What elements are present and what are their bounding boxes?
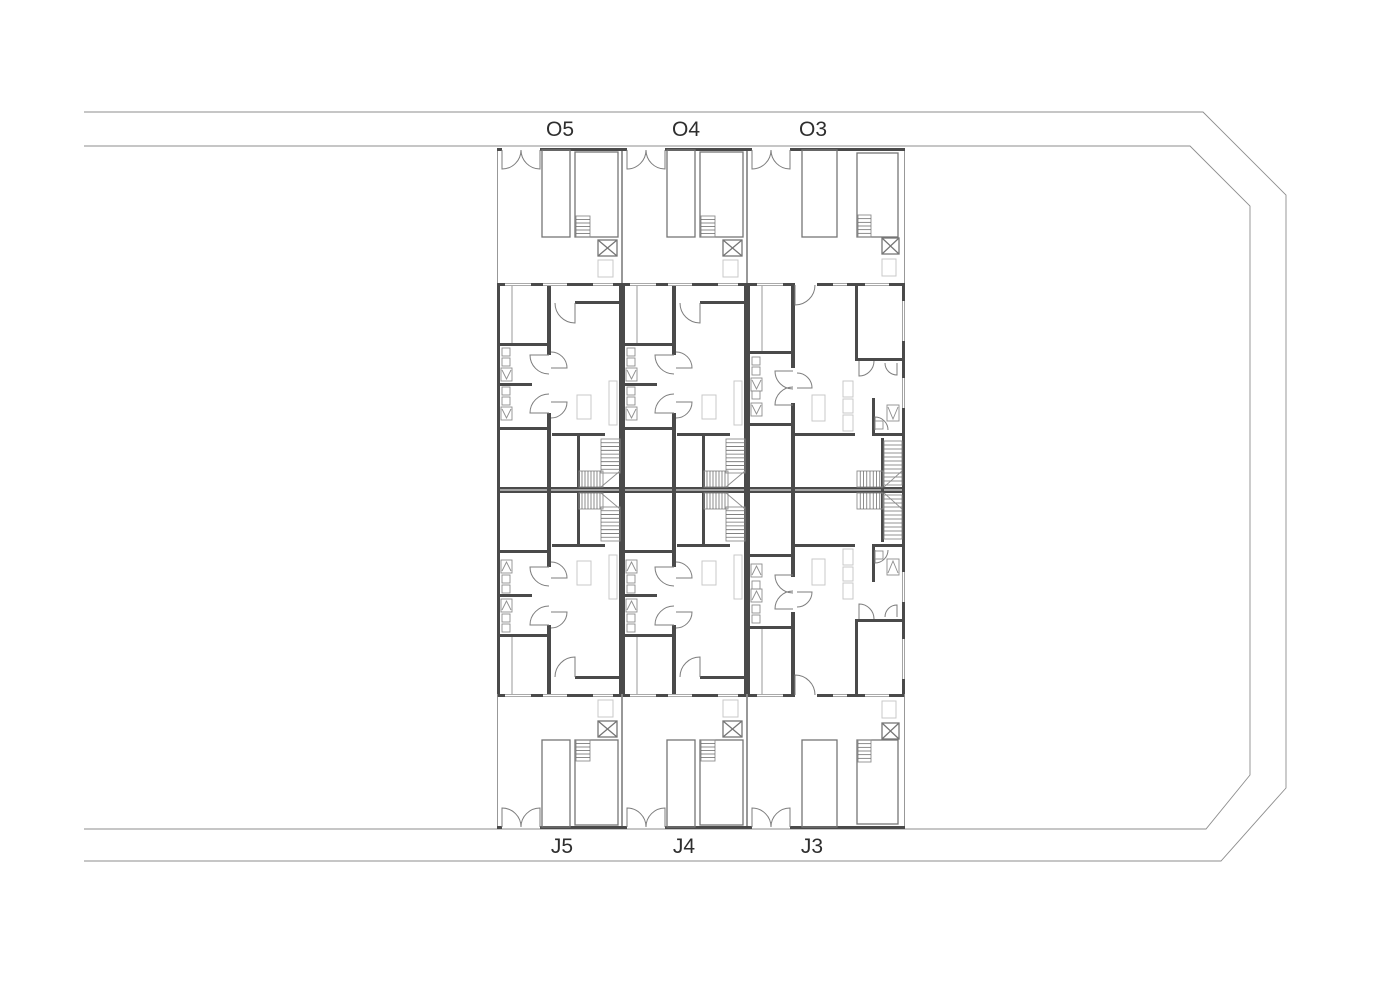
unit-label-J4: J4 bbox=[673, 835, 696, 858]
unit-label-J5: J5 bbox=[551, 835, 573, 858]
unit-O4-courtyard bbox=[622, 148, 747, 283]
unit-J5-courtyard bbox=[497, 694, 622, 829]
unit-O5-dwelling bbox=[497, 283, 622, 490]
unit-O3-dwelling bbox=[747, 283, 905, 490]
floor-plan-drawing: O5J5O4J4O3J3 bbox=[0, 0, 1400, 989]
site-boundary bbox=[84, 112, 1286, 861]
unit-J3-courtyard bbox=[747, 694, 905, 829]
unit-J3-dwelling bbox=[747, 490, 905, 697]
unit-label-O4: O4 bbox=[672, 118, 700, 141]
unit-O4-dwelling bbox=[622, 283, 747, 490]
unit-O5-courtyard bbox=[497, 148, 622, 283]
floor-plan-page: O5J5O4J4O3J3 bbox=[0, 0, 1400, 989]
unit-J4-courtyard bbox=[622, 694, 747, 829]
unit-J4-dwelling bbox=[622, 490, 747, 697]
unit-label-O3: O3 bbox=[799, 118, 827, 141]
unit-label-J3: J3 bbox=[801, 835, 823, 858]
unit-O3-courtyard bbox=[747, 148, 905, 283]
unit-label-O5: O5 bbox=[546, 118, 574, 141]
unit-J5-dwelling bbox=[497, 490, 622, 697]
